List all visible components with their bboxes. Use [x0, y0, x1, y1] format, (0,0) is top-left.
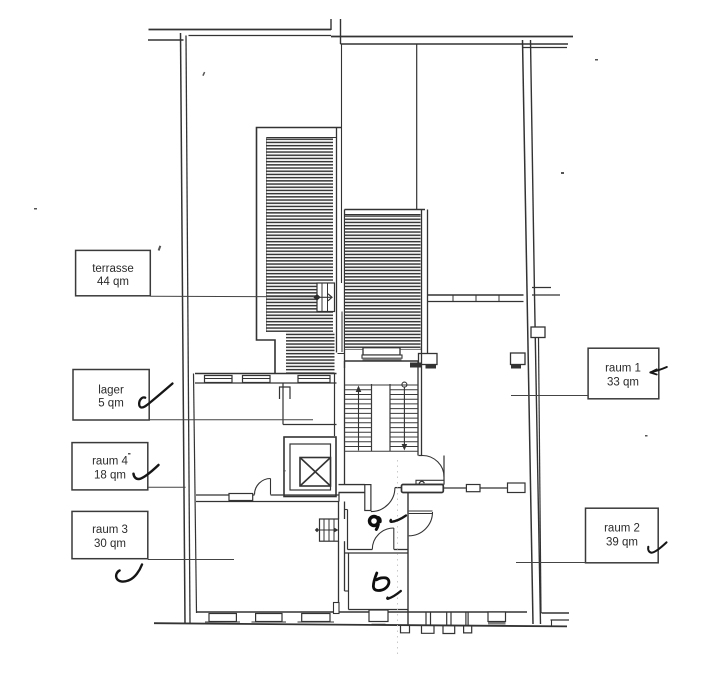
svg-text:terrasse: terrasse	[92, 263, 134, 275]
svg-text:33 qm: 33 qm	[607, 377, 639, 389]
svg-text:39 qm: 39 qm	[606, 537, 638, 549]
svg-text:44 qm: 44 qm	[97, 276, 129, 288]
svg-text:raum 2: raum 2	[604, 523, 640, 535]
svg-text:18 qm: 18 qm	[94, 470, 126, 482]
svg-text:raum 1: raum 1	[605, 363, 641, 375]
svg-text:30 qm: 30 qm	[94, 538, 126, 550]
svg-text:5 qm: 5 qm	[98, 398, 124, 410]
svg-text:raum 4: raum 4	[92, 456, 128, 468]
svg-text:raum 3: raum 3	[92, 524, 128, 536]
svg-text:lager: lager	[98, 385, 124, 397]
